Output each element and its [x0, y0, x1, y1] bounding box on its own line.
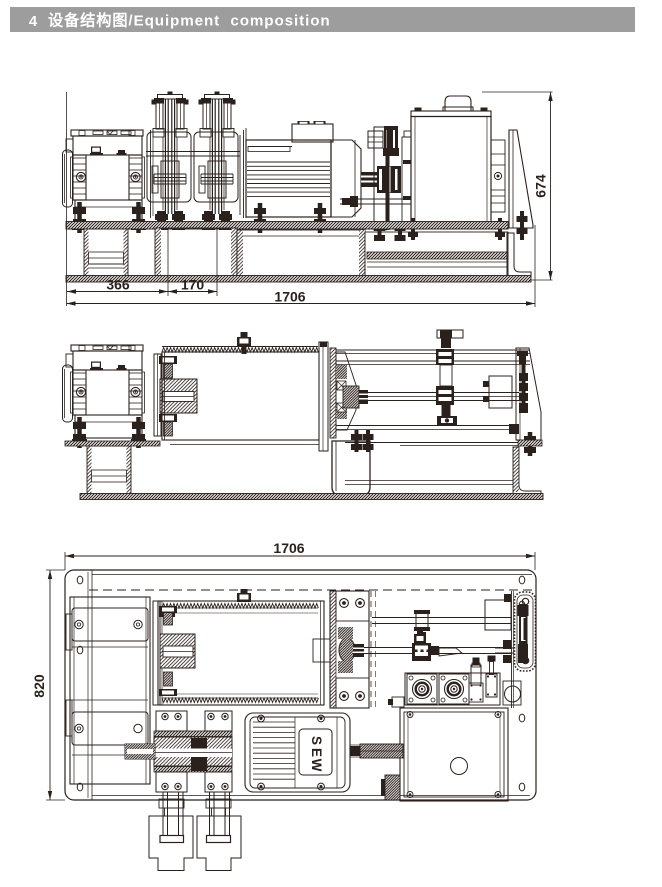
svg-text:W: W — [309, 759, 324, 772]
svg-text:4: 4 — [29, 13, 38, 30]
svg-text:S: S — [309, 736, 324, 745]
svg-text:E: E — [309, 748, 324, 757]
svg-text:820: 820 — [31, 674, 47, 698]
svg-text:366: 366 — [106, 277, 130, 293]
svg-text:170: 170 — [181, 277, 205, 293]
svg-text:674: 674 — [533, 174, 549, 198]
svg-text:设备结构图/Equipment composition: 设备结构图/Equipment composition — [48, 12, 331, 30]
svg-text:1706: 1706 — [274, 289, 305, 305]
svg-text:1706: 1706 — [273, 540, 304, 556]
